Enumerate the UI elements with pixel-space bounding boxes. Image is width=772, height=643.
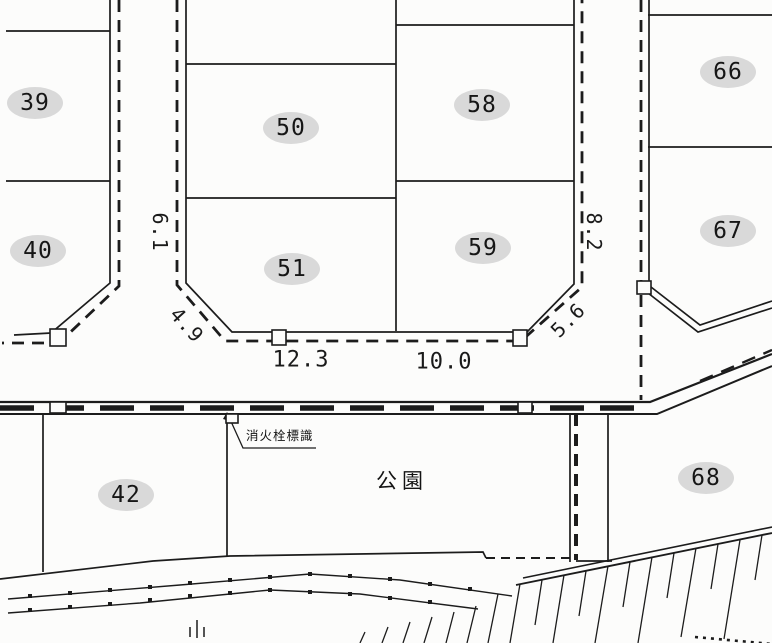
lot-label-39: 39 bbox=[7, 87, 63, 119]
park-label: 公園 bbox=[376, 465, 428, 495]
measurement-12-3: 12.3 bbox=[273, 348, 330, 373]
vegetation-symbol bbox=[190, 620, 204, 638]
diagonal-road-dash bbox=[700, 350, 772, 381]
lot-label-67: 67 bbox=[700, 215, 756, 247]
road-dash-lines bbox=[2, 0, 641, 400]
lot-label-42: 42 bbox=[98, 479, 154, 511]
lot-label-68: 68 bbox=[678, 462, 734, 494]
measurement-6-1: 6.1 bbox=[148, 212, 172, 251]
lot-label-51: 51 bbox=[264, 253, 320, 285]
lot-label-50: 50 bbox=[263, 112, 319, 144]
road-north-edge bbox=[0, 354, 772, 402]
map-linework bbox=[0, 0, 772, 643]
lot-label-66: 66 bbox=[700, 56, 756, 88]
slope-bottom-dots bbox=[695, 637, 772, 643]
lot-label-58: 58 bbox=[454, 89, 510, 121]
lot-label-59: 59 bbox=[455, 232, 511, 264]
measurement-10-0: 10.0 bbox=[416, 350, 473, 375]
cadastral-map: 39 40 42 50 51 58 59 66 67 68 6.1 4.9 12… bbox=[0, 0, 772, 643]
fence-lines bbox=[8, 574, 512, 613]
measurement-8-2: 8.2 bbox=[582, 212, 606, 251]
hydrant-sign-label: 消火栓標識 bbox=[246, 425, 314, 444]
lot-label-40: 40 bbox=[10, 235, 66, 267]
slope-hatching bbox=[360, 535, 762, 643]
